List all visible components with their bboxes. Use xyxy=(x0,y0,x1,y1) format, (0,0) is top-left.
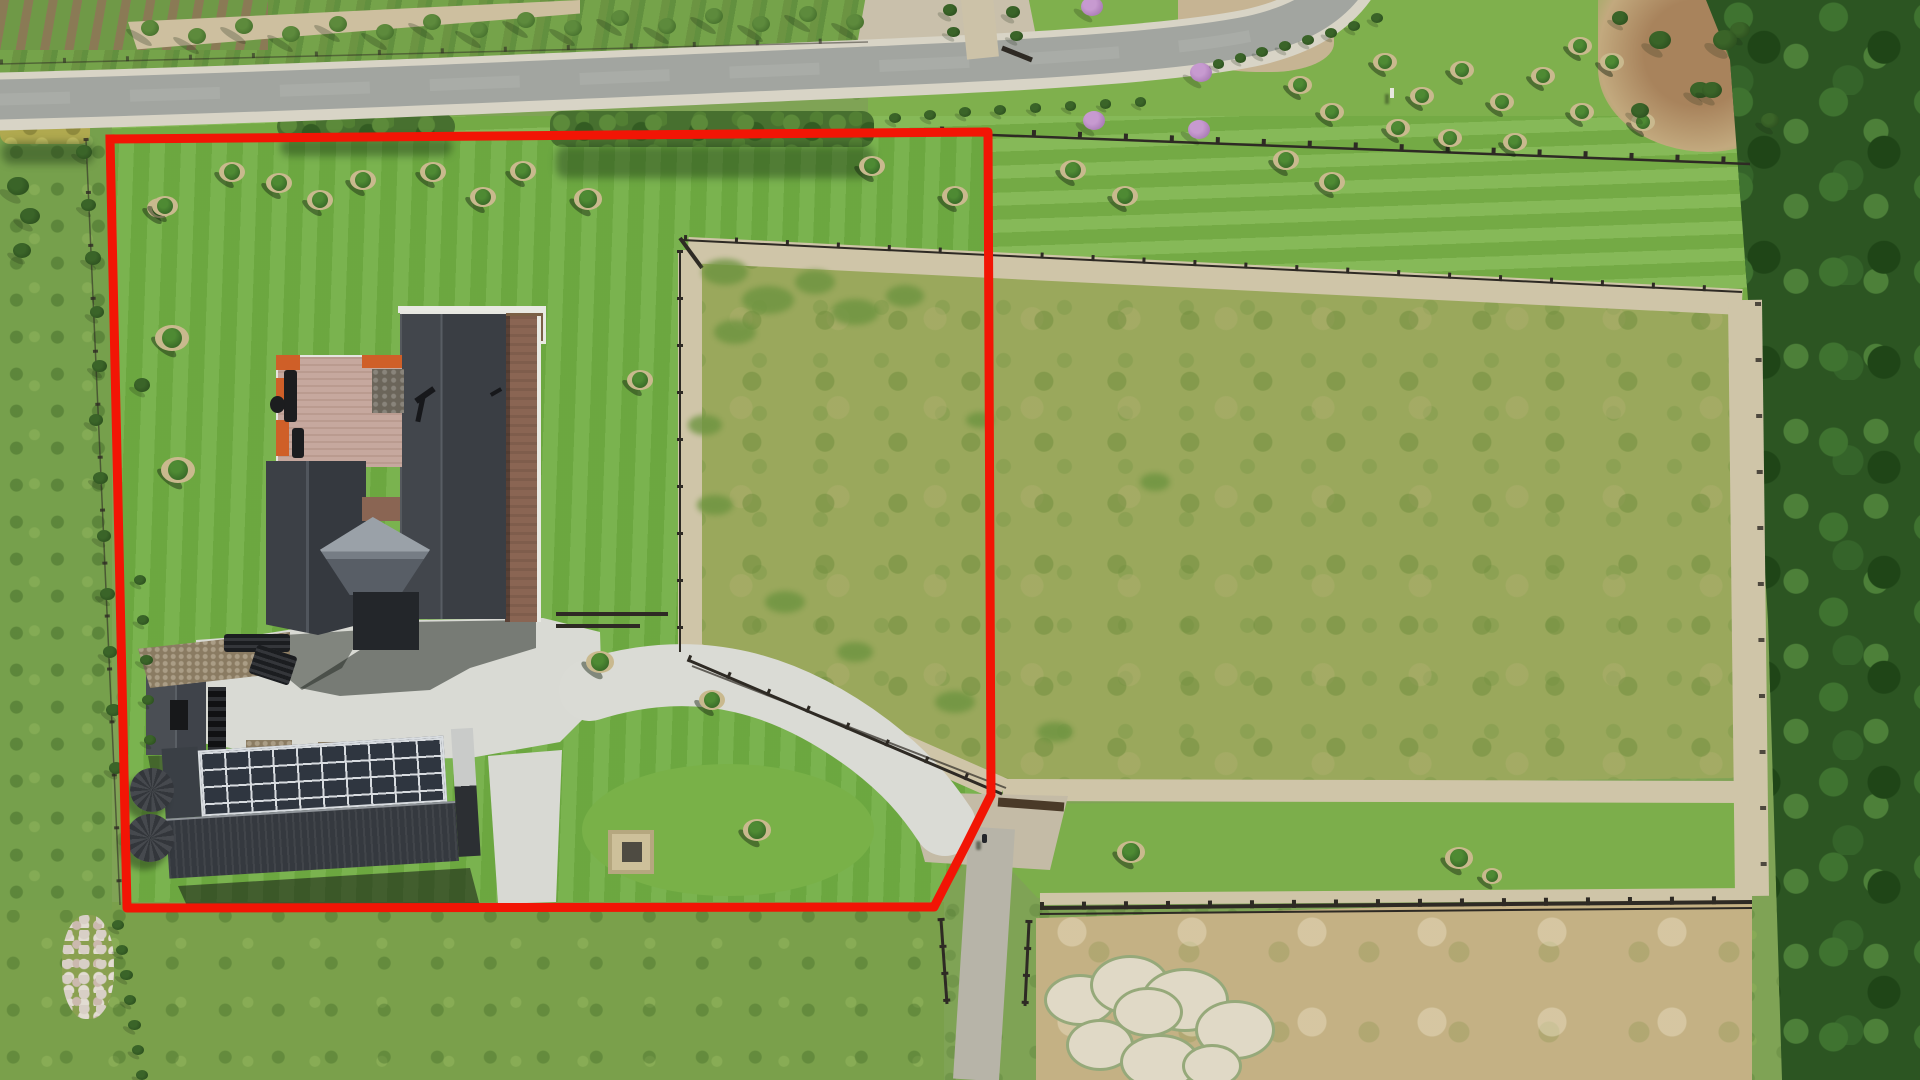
aerial-photo xyxy=(0,0,1920,1080)
property-boundary-overlay xyxy=(0,0,1920,1080)
boundary-red-line xyxy=(110,132,991,908)
